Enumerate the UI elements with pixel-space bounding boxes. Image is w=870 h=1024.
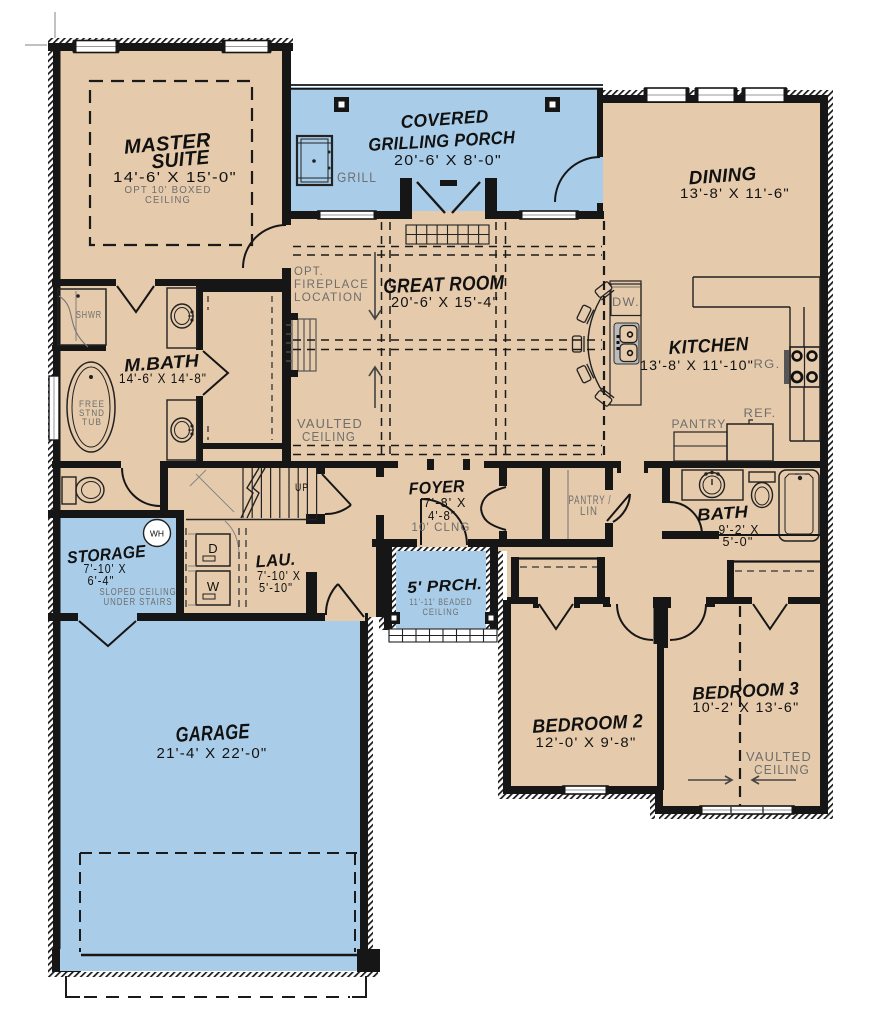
svg-text:5'-10": 5'-10" [259,580,293,595]
svg-text:PANTRY: PANTRY [672,417,727,431]
svg-text:13'-8' X 11'-10": 13'-8' X 11'-10" [640,357,754,373]
svg-text:12'-0' X 9'-8": 12'-0' X 9'-8" [536,734,637,750]
svg-text:W: W [207,579,220,594]
svg-text:14'-6' X 15'-0": 14'-6' X 15'-0" [113,170,237,186]
svg-text:FIREPLACE: FIREPLACE [294,279,369,291]
svg-text:D: D [208,541,217,556]
svg-text:TUB: TUB [82,417,102,428]
svg-text:CEILING: CEILING [423,607,460,618]
svg-text:10'-2' X 13'-6": 10'-2' X 13'-6" [693,700,800,715]
svg-text:5'-0": 5'-0" [723,534,754,549]
svg-text:20'-6' X 8'-0": 20'-6' X 8'-0" [394,153,502,169]
svg-text:SHWR: SHWR [76,310,102,321]
svg-text:10' CLNG: 10' CLNG [412,520,471,534]
svg-text:CEILING: CEILING [754,763,810,777]
svg-text:CEILING: CEILING [302,430,356,444]
svg-text:DW.: DW. [612,297,640,309]
svg-text:6'-4": 6'-4" [88,573,115,588]
svg-text:OPT.: OPT. [294,266,324,278]
svg-text:20'-6' X 15'-4": 20'-6' X 15'-4" [391,295,499,311]
svg-text:VAULTED: VAULTED [297,417,363,431]
svg-text:LIN: LIN [580,506,598,518]
svg-text:GRILL: GRILL [337,170,377,185]
svg-text:UNDER STAIRS: UNDER STAIRS [104,597,173,608]
svg-text:WH: WH [150,529,164,539]
svg-text:14'-6' X 14'-8": 14'-6' X 14'-8" [119,371,207,386]
svg-text:CEILING: CEILING [145,195,191,206]
svg-text:GARAGE: GARAGE [175,720,251,747]
svg-text:RG.: RG. [754,357,781,371]
svg-text:13'-8' X 11'-6": 13'-8' X 11'-6" [680,185,790,201]
svg-text:21'-4' X 22'-0": 21'-4' X 22'-0" [157,746,268,762]
svg-text:KITCHEN: KITCHEN [668,334,750,359]
svg-text:LOCATION: LOCATION [294,292,363,304]
svg-text:VAULTED: VAULTED [746,750,812,764]
svg-text:REF.: REF. [744,406,777,420]
svg-text:UP: UP [295,482,309,494]
